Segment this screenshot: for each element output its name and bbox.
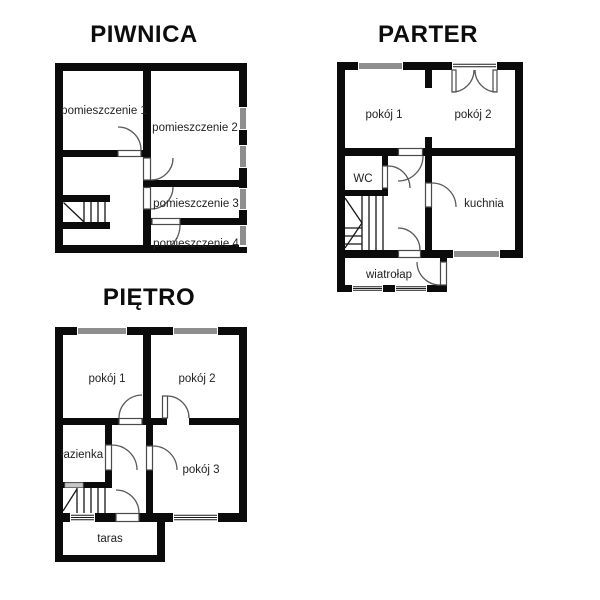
room-label: pokój 2 xyxy=(178,373,215,385)
window-icon xyxy=(77,327,127,335)
room-label: pokój 1 xyxy=(88,373,125,385)
window-icon xyxy=(173,513,218,522)
room-label: taras xyxy=(97,533,123,545)
floor-title-parter: PARTER xyxy=(378,21,478,48)
floor-title-pietro: PIĘTRO xyxy=(103,284,195,311)
floor-plan-drawing: PIWNICA xyxy=(0,0,600,600)
floor-piwnica: PIWNICA xyxy=(55,21,247,253)
window-icon xyxy=(239,225,247,247)
room-label: pomieszczenie 1 xyxy=(61,105,147,117)
window-icon xyxy=(395,285,427,292)
floor-parter: PARTER xyxy=(337,21,523,292)
pietro-walls xyxy=(55,327,247,562)
window-icon xyxy=(453,250,500,258)
floor-pietro: PIĘTRO xyxy=(55,284,247,562)
window-icon xyxy=(173,327,218,335)
room-label: pomieszczenie 3 xyxy=(153,198,239,210)
stair-passage-icon xyxy=(65,483,83,488)
room-label: pomieszczenie 2 xyxy=(152,122,238,134)
window-icon xyxy=(358,62,403,70)
room-label: WC xyxy=(353,173,372,185)
room-label: pokój 3 xyxy=(182,464,219,476)
room-label: pokój 1 xyxy=(365,109,402,121)
window-icon xyxy=(239,145,247,168)
room-label: kuchnia xyxy=(464,198,504,210)
room-label: wiatrołap xyxy=(365,269,412,281)
room-label: łazienka xyxy=(61,449,104,461)
floor-plan-canvas: PIWNICA xyxy=(0,0,600,600)
window-icon xyxy=(352,285,383,292)
window-icon xyxy=(239,188,247,210)
window-icon xyxy=(70,513,95,522)
room-label: pomieszczenie 4 xyxy=(153,238,239,250)
floor-title-piwnica: PIWNICA xyxy=(90,21,198,48)
window-icon xyxy=(239,107,247,130)
room-label: pokój 2 xyxy=(454,109,491,121)
